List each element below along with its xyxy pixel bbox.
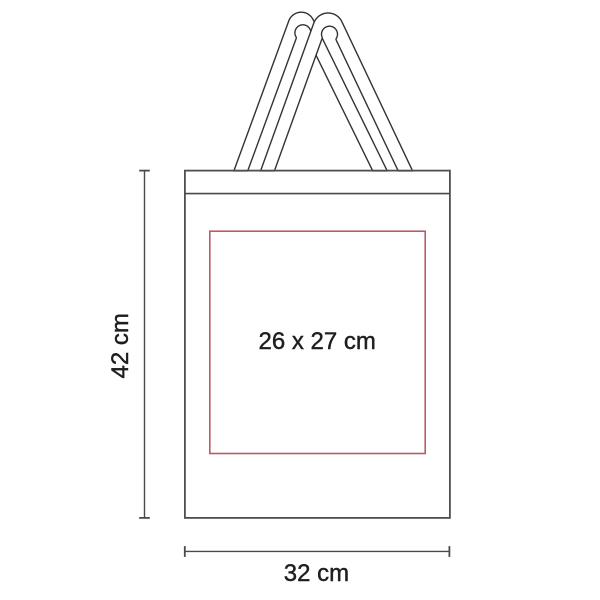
svg-text:42 cm: 42 cm [107,313,134,378]
svg-text:32 cm: 32 cm [284,560,349,587]
svg-text:26 x 27 cm: 26 x 27 cm [258,328,375,355]
